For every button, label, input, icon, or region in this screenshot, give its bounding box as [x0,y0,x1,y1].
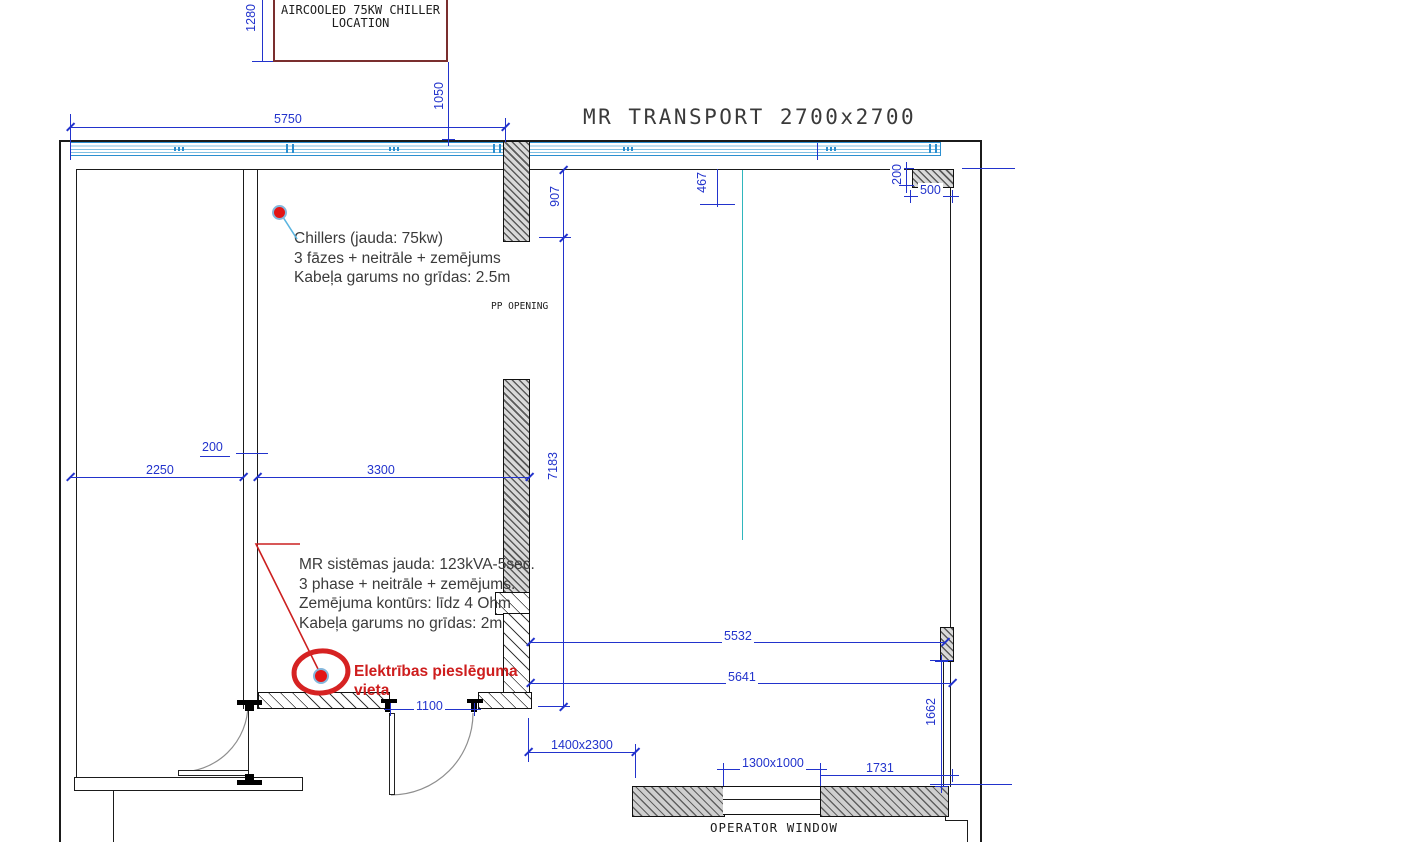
door-swing-arc-left [178,704,248,772]
operator-wall-right [820,786,949,817]
operator-window-opening [723,786,820,815]
door-bottom-leaf [389,713,395,795]
dim-cross [384,703,397,716]
dim-2250: 2250 [144,463,176,477]
dim-ext [930,784,1012,785]
band-divider [499,144,501,153]
dim-ext [505,118,506,142]
dim-ext [70,114,71,160]
door-jamb [245,705,254,711]
dim-ext [817,143,818,160]
dim-tickbar [539,237,571,238]
dim-cross [442,133,455,146]
dim-tickbar [700,204,735,205]
dim-cross [946,190,959,203]
wall-line-left-outer [59,140,61,842]
chiller-box-label-line1: AIRCOOLED 75KW CHILLER [275,3,446,17]
dim-tickbar [252,61,273,62]
chiller-annotation: Chillers (jauda: 75kw) 3 fāzes + neitrāl… [294,229,510,288]
band-divider [493,144,495,153]
floor-plan-canvas: AIRCOOLED 75KW CHILLER LOCATION MR TRANS… [0,0,1427,842]
dim-line-3300 [257,477,530,478]
band-divider [286,144,288,153]
wall-line-right-inner2 [943,660,944,787]
dim-line-1662 [941,661,942,787]
band-divider [935,144,937,153]
dim-line-1400x2300 [528,752,635,753]
dim-1100: 1100 [414,699,445,713]
chiller-annotation-line1: Chillers (jauda: 75kw) [294,229,510,249]
electrical-connection-line2: vieta [354,681,518,700]
dim-907: 907 [548,186,562,207]
dim-tickbar [899,185,914,186]
dim-1662: 1662 [924,698,938,726]
centerline-cyan [742,170,743,540]
dim-ext [528,718,529,762]
step-line [967,820,968,842]
chiller-point-marker [272,205,287,220]
power-annotation-line2: 3 phase + neitrāle + zemējums. [299,575,535,595]
counter-desk [74,777,303,791]
dim-cross [935,655,948,668]
power-annotation: MR sistēmas jauda: 123kVA-5sec. 3 phase … [299,555,535,633]
counter-leg-line [113,791,114,842]
dim-line-5750 [70,127,505,128]
dim-line-1280 [262,0,263,62]
power-annotation-line4: Kabeļa garums no grīdas: 2m [299,614,535,634]
dim-3300: 3300 [365,463,397,477]
drawing-title: MR TRANSPORT 2700x2700 [583,105,916,129]
dim-line-467 [717,169,718,207]
dim-5641: 5641 [726,670,758,684]
chiller-annotation-line2: 3 fāzes + neitrāle + zemējums [294,249,510,269]
dim-line-1731 [820,775,952,776]
door-jamb [245,774,254,780]
partition-wall-right-line [257,169,258,709]
wall-line-top-inner [76,169,912,170]
step-line [945,820,968,821]
electrical-connection-line1: Elektrības pieslēguma [354,662,518,681]
power-annotation-line3: Zemējuma kontūrs: līdz 4 Ohm [299,594,535,614]
door-left-closed-line [248,708,249,772]
dim-line-7183 [563,238,564,707]
wall-line-right-outer [980,140,982,842]
hatched-column-top [503,141,530,242]
dim-line-200tr [906,162,907,193]
band-divider [929,144,931,153]
partition-wall-left-line [243,169,244,709]
dim-cross [946,769,959,782]
wall-line-left-inner [76,169,77,778]
dim-tickbar [236,453,268,454]
electrical-connection-label: Elektrības pieslēguma vieta [354,662,518,700]
dim-ext [962,168,1015,169]
dim-line-907 [563,170,564,238]
door-jamb [237,780,262,785]
band-tick-cluster [826,147,836,151]
band-divider [292,144,294,153]
dim-1300x1000: 1300x1000 [740,756,806,770]
chiller-annotation-line3: Kabeļa garums no grīdas: 2.5m [294,268,510,288]
power-annotation-line1: MR sistēmas jauda: 123kVA-5sec. [299,555,535,575]
dim-200-top-right: 200 [890,164,904,185]
dim-line-2250 [70,477,243,478]
dim-cross [904,190,917,203]
dim-5750: 5750 [272,112,304,126]
band-tick-cluster [389,147,399,151]
dim-1731: 1731 [864,761,896,775]
dim-7183: 7183 [546,452,560,480]
door-left-leaf [178,770,249,776]
operator-window-label: OPERATOR WINDOW [710,820,838,835]
dim-5532: 5532 [722,629,754,643]
band-tick-cluster [623,147,633,151]
dim-467: 467 [695,172,709,193]
chiller-location-box: AIRCOOLED 75KW CHILLER LOCATION [273,0,448,62]
window-glass-line [723,799,820,800]
pp-opening-label: PP OPENING [491,301,548,312]
dim-cross [468,703,481,716]
chiller-box-label-line2: LOCATION [275,16,446,30]
wall-line-right-inner [950,186,951,787]
door-swing-arc-bottom [391,713,473,795]
dim-1280: 1280 [244,4,258,32]
operator-wall-left [632,786,725,817]
dim-200-partition: 200 [200,440,225,454]
dim-cross [717,763,730,776]
dim-leader [200,456,230,457]
dim-1050: 1050 [432,82,446,110]
electrical-point-marker [313,668,329,684]
band-tick-cluster [174,147,184,151]
dim-1400x2300: 1400x2300 [549,738,615,752]
dim-500: 500 [918,183,943,197]
